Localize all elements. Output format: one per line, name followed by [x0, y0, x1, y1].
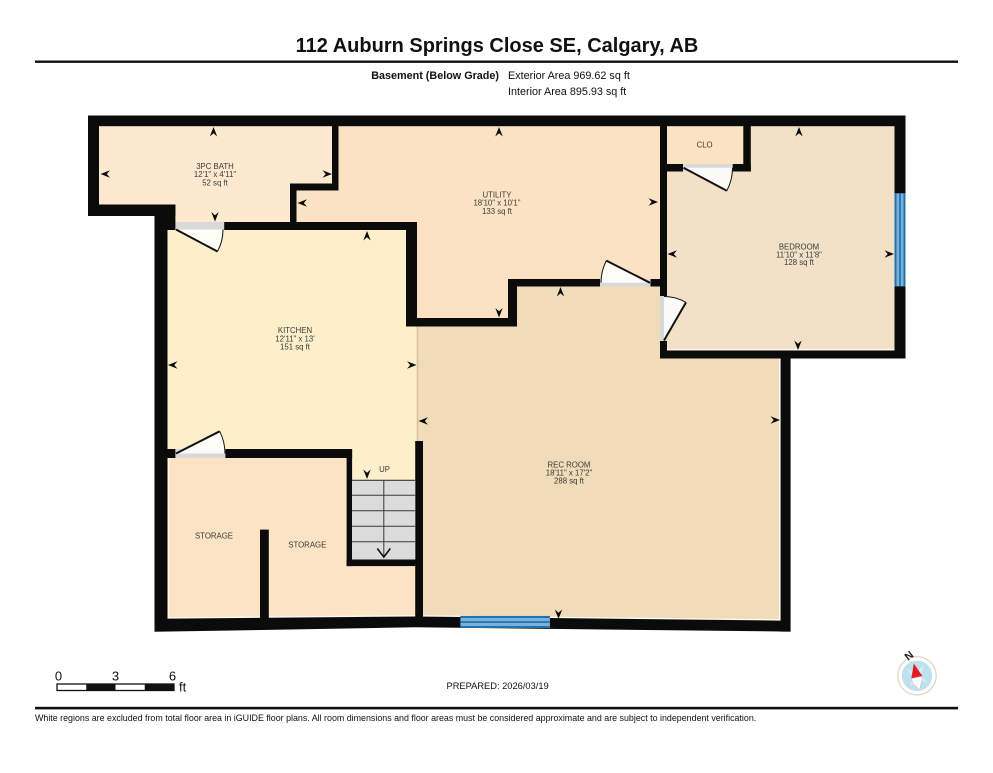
svg-text:PREPARED: 2026/03/19: PREPARED: 2026/03/19: [447, 681, 549, 691]
svg-text:3: 3: [112, 669, 119, 684]
svg-text:0: 0: [55, 669, 62, 684]
svg-text:STORAGE: STORAGE: [195, 532, 233, 541]
svg-text:ft: ft: [179, 680, 187, 695]
svg-text:52 sq ft: 52 sq ft: [202, 178, 228, 187]
svg-text:White regions are excluded fro: White regions are excluded from total fl…: [35, 713, 756, 723]
svg-text:128 sq ft: 128 sq ft: [784, 258, 815, 267]
svg-text:STORAGE: STORAGE: [288, 541, 326, 550]
svg-text:151 sq ft: 151 sq ft: [280, 343, 311, 352]
svg-text:288 sq ft: 288 sq ft: [554, 476, 585, 485]
svg-text:Interior Area 895.93 sq ft: Interior Area 895.93 sq ft: [508, 86, 626, 98]
svg-text:112 Auburn Springs Close SE, C: 112 Auburn Springs Close SE, Calgary, AB: [296, 35, 699, 57]
svg-text:Basement (Below Grade): Basement (Below Grade): [371, 70, 499, 82]
svg-text:Exterior Area 969.62 sq ft: Exterior Area 969.62 sq ft: [508, 70, 630, 82]
svg-text:6: 6: [169, 669, 176, 684]
svg-text:UP: UP: [379, 465, 390, 474]
svg-text:CLO: CLO: [697, 141, 713, 150]
svg-text:133 sq ft: 133 sq ft: [482, 207, 513, 216]
